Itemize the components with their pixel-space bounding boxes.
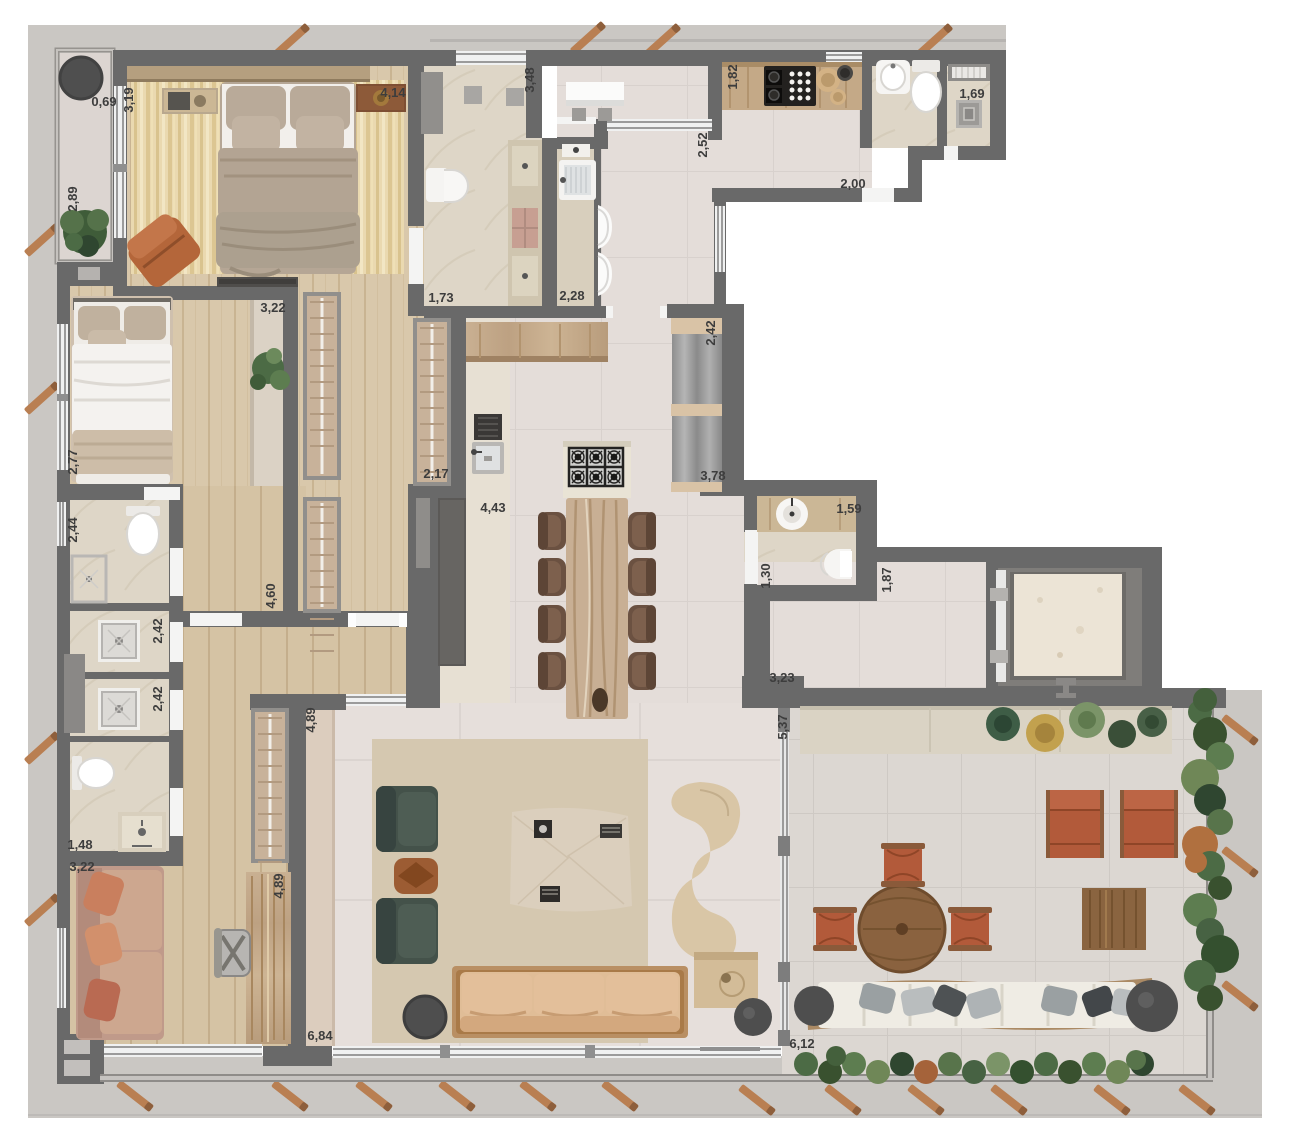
svg-text:1,87: 1,87 <box>879 567 894 592</box>
svg-text:3,78: 3,78 <box>700 468 725 483</box>
svg-text:6,84: 6,84 <box>307 1028 333 1043</box>
svg-text:1,73: 1,73 <box>428 290 453 305</box>
svg-text:1,69: 1,69 <box>959 86 984 101</box>
svg-text:1,30: 1,30 <box>758 563 773 588</box>
svg-text:3,19: 3,19 <box>121 87 136 112</box>
svg-text:2,52: 2,52 <box>695 132 710 157</box>
svg-text:2,44: 2,44 <box>65 517 80 543</box>
svg-text:4,43: 4,43 <box>480 500 505 515</box>
svg-text:2,89: 2,89 <box>65 186 80 211</box>
svg-text:6,12: 6,12 <box>789 1036 814 1051</box>
svg-text:1,82: 1,82 <box>725 64 740 89</box>
svg-text:0,69: 0,69 <box>91 94 116 109</box>
svg-text:2,42: 2,42 <box>150 686 165 711</box>
svg-text:3,22: 3,22 <box>260 300 285 315</box>
svg-text:4,89: 4,89 <box>271 873 286 898</box>
svg-text:2,28: 2,28 <box>559 288 584 303</box>
svg-text:3,22: 3,22 <box>69 859 94 874</box>
svg-text:3,23: 3,23 <box>769 670 794 685</box>
svg-text:2,42: 2,42 <box>150 618 165 643</box>
svg-text:3,48: 3,48 <box>522 67 537 92</box>
svg-text:1,48: 1,48 <box>67 837 92 852</box>
svg-text:2,77: 2,77 <box>65 449 80 474</box>
svg-text:4,60: 4,60 <box>263 583 278 608</box>
svg-text:2,17: 2,17 <box>423 466 448 481</box>
svg-text:4,89: 4,89 <box>303 707 318 732</box>
svg-text:5,37: 5,37 <box>775 714 790 739</box>
svg-text:2,00: 2,00 <box>840 176 865 191</box>
svg-text:1,59: 1,59 <box>836 501 861 516</box>
svg-text:4,14: 4,14 <box>380 85 406 100</box>
svg-text:2,42: 2,42 <box>703 320 718 345</box>
